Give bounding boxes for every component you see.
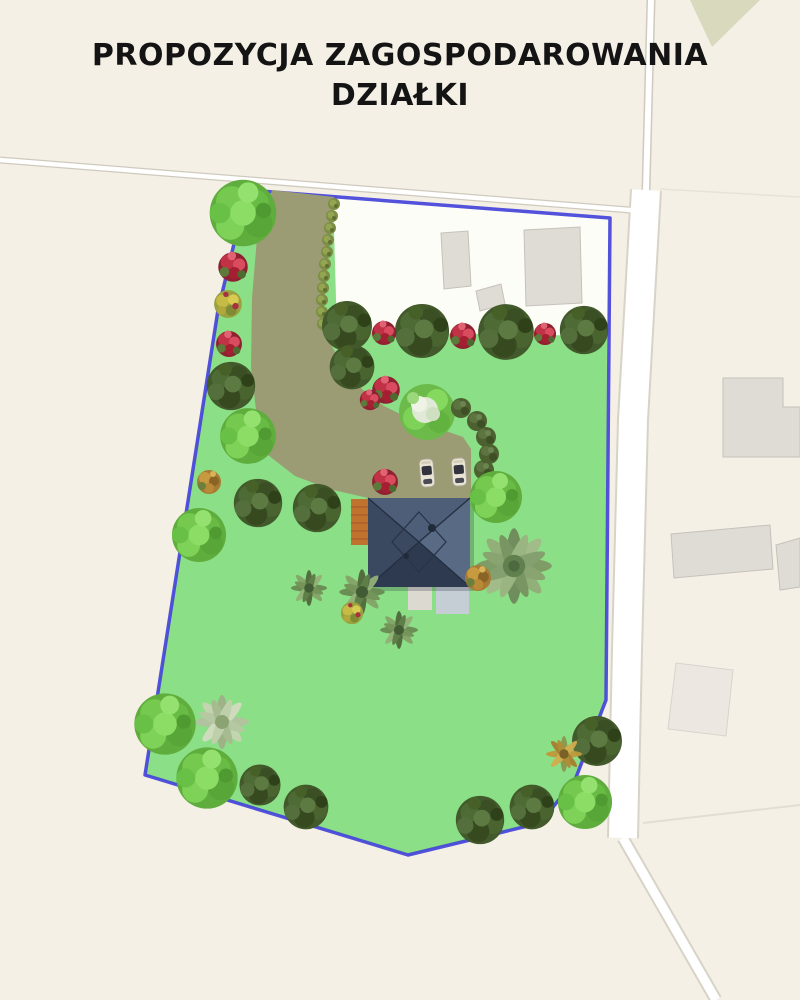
dark-tree	[330, 345, 375, 390]
hedge-plant	[319, 258, 331, 270]
title-line-2: DZIAŁKI	[0, 76, 800, 116]
background-building	[776, 538, 800, 590]
hedge-plant	[317, 282, 329, 294]
bright-tree	[172, 508, 226, 562]
existing-building	[524, 227, 582, 306]
hedge-plant	[318, 270, 330, 282]
car	[451, 458, 467, 487]
wooden-deck	[351, 499, 369, 545]
dark-tree	[234, 479, 282, 527]
hedge-plant	[321, 246, 333, 258]
border-shrub	[451, 398, 471, 418]
site-plan-page: PROPOZYCJA ZAGOSPODAROWANIA DZIAŁKI	[0, 0, 800, 1000]
dark-tree	[572, 716, 622, 766]
car	[419, 458, 435, 487]
page-title: PROPOZYCJA ZAGOSPODAROWANIA DZIAŁKI	[0, 36, 800, 116]
dark-tree	[284, 785, 329, 830]
palm-tree	[195, 695, 249, 749]
ornamental-grass	[380, 611, 418, 649]
dark-tree	[239, 764, 280, 805]
flowering-tree	[399, 384, 455, 440]
hedge-plant	[326, 210, 338, 222]
background-building	[671, 525, 773, 578]
dark-tree	[293, 484, 341, 532]
dark-tree	[478, 304, 534, 360]
dark-tree	[322, 301, 372, 351]
dark-tree	[207, 362, 255, 410]
chimney	[428, 524, 436, 532]
yellow-shrub	[214, 290, 242, 318]
bright-tree	[210, 180, 277, 247]
chimney	[403, 553, 409, 559]
bright-tree	[558, 775, 612, 829]
border-shrub	[476, 427, 496, 447]
hedge-plant	[328, 198, 340, 210]
orange-shrub	[465, 565, 491, 591]
house-roof	[368, 498, 474, 591]
site-plan-map	[0, 0, 800, 1000]
existing-building	[441, 231, 471, 289]
bright-tree	[470, 471, 522, 523]
bright-tree	[220, 408, 276, 464]
palm-tree	[476, 528, 552, 604]
dark-tree	[456, 796, 504, 844]
hedge-plant	[322, 234, 334, 246]
yellow-shrub	[341, 602, 363, 624]
dark-tree	[395, 304, 449, 358]
hedge-plant	[316, 294, 328, 306]
ornamental-grass	[546, 736, 582, 772]
bright-tree	[134, 693, 195, 754]
bright-tree	[176, 747, 237, 808]
dark-tree	[560, 306, 608, 354]
hedge-plant	[324, 222, 336, 234]
background-building	[668, 663, 733, 736]
orange-shrub	[197, 470, 221, 494]
ornamental-grass	[291, 570, 327, 606]
title-line-1: PROPOZYCJA ZAGOSPODAROWANIA	[0, 36, 800, 76]
dark-tree	[510, 785, 555, 830]
